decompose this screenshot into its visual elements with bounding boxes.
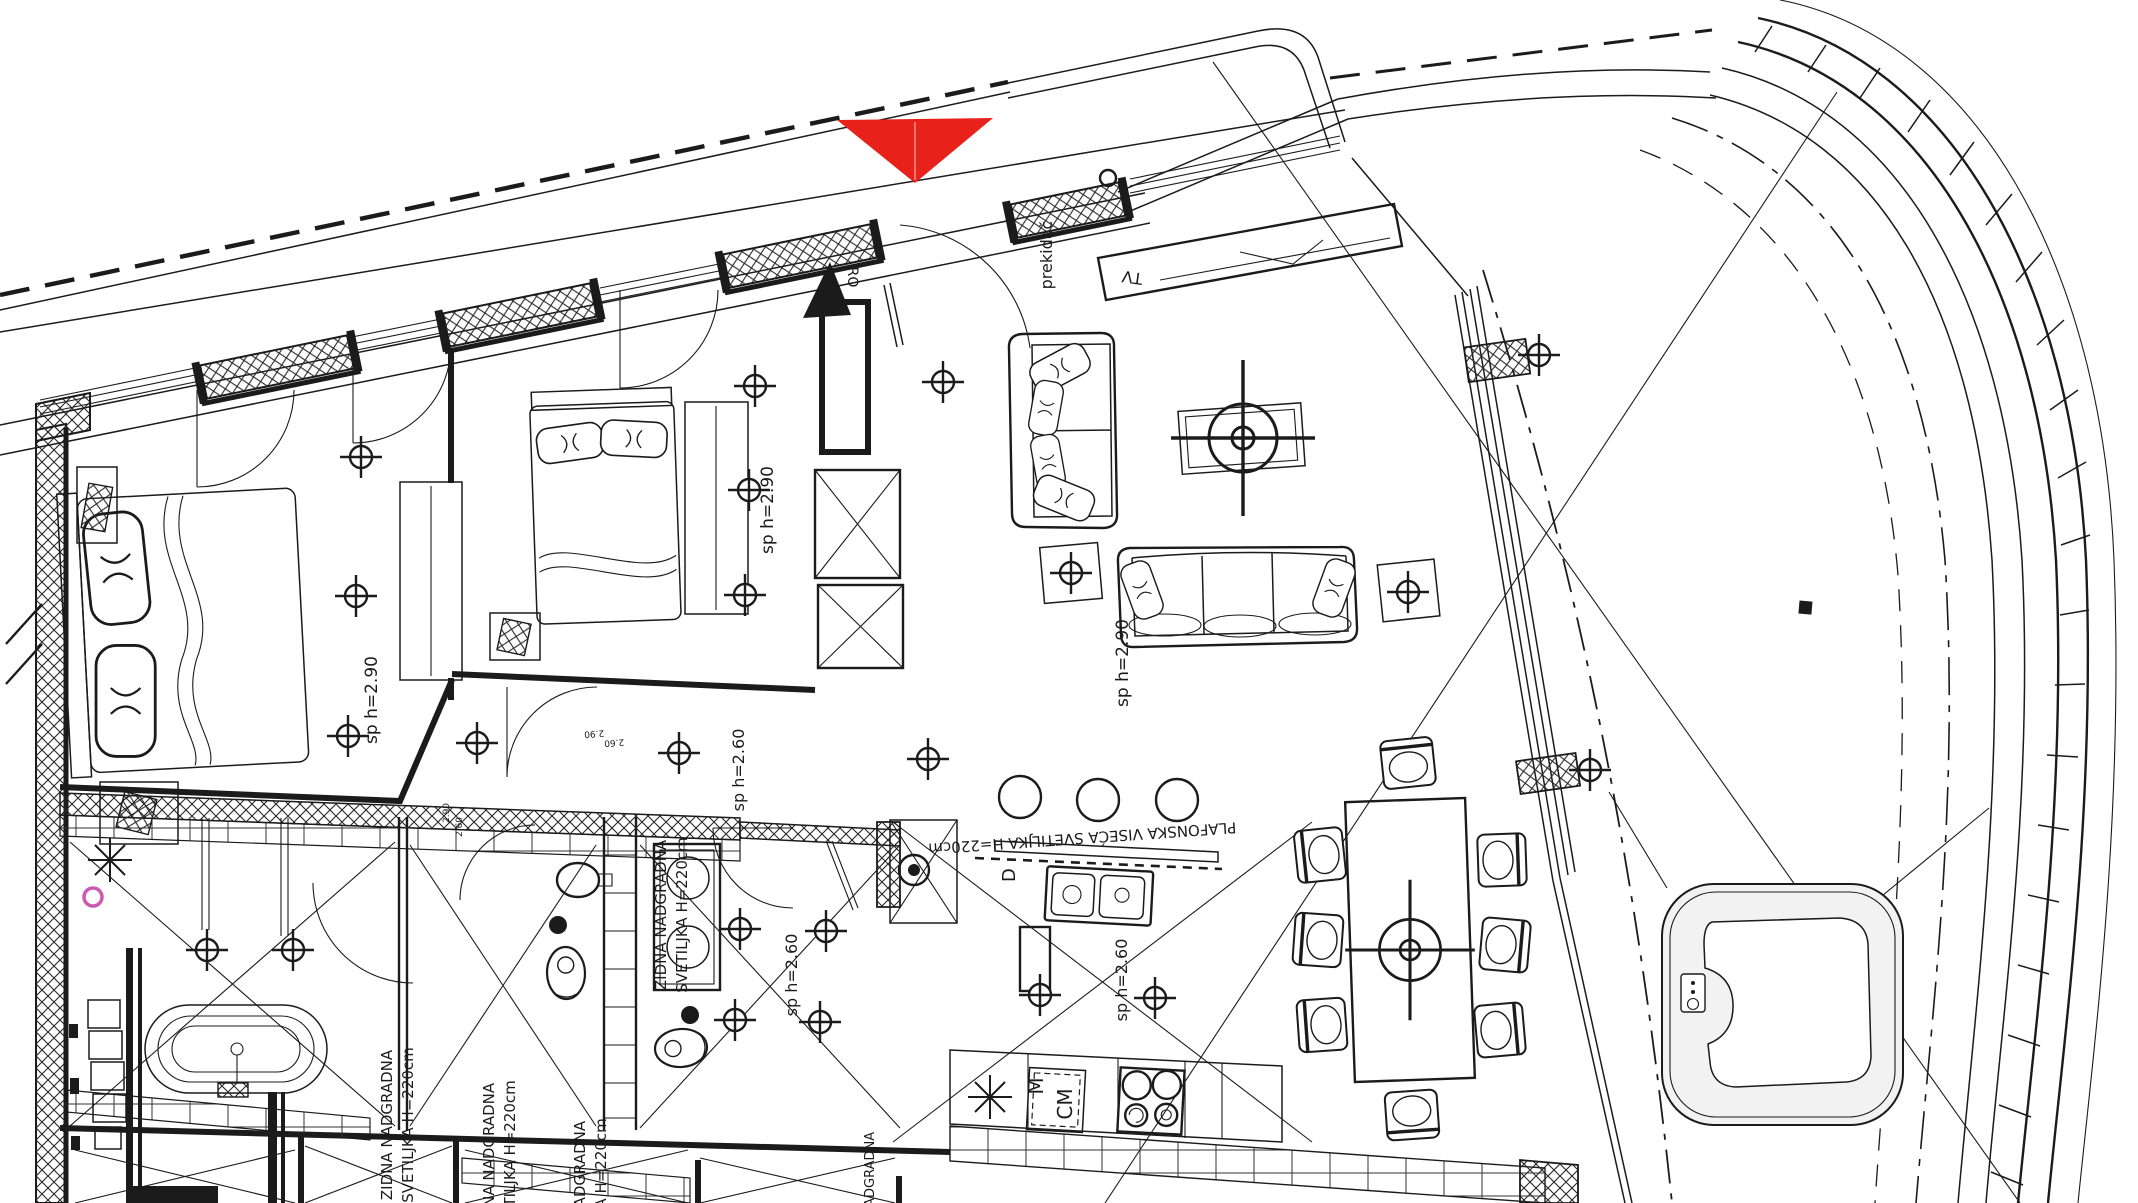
label-dishwasher: D	[999, 868, 1020, 882]
label-room-height: sp h=2.60	[729, 729, 748, 812]
dimension: 2.60	[604, 736, 625, 747]
north-entry-marker	[837, 118, 993, 183]
hot-tub	[1662, 884, 1903, 1125]
label-wall-light: SVETILJKA H=220cm	[673, 837, 691, 993]
bedroom-2-furniture	[529, 387, 681, 624]
label-wall-light: SVETILJKA H=220cm	[592, 1118, 610, 1203]
label-room-height: sp h=2.90	[1113, 619, 1133, 707]
wall-pier	[434, 278, 605, 353]
label-appliance-cm: CM	[1053, 1088, 1077, 1119]
label-distribution-board: RO	[844, 267, 860, 288]
label-wall-light: ZIDNA NADGRADNA	[652, 839, 670, 990]
sofa-two-seater	[1009, 333, 1117, 528]
tub-control-panel	[1681, 974, 1705, 1012]
label-room-height: sp h=2.60	[782, 934, 801, 1017]
annotations: sp h=2.90 sp h=2.90 sp h=2.90 sp h=2.60 …	[362, 221, 1237, 1203]
label-wall-light: SVETILJKA H=220cm	[399, 1047, 417, 1203]
interior-walls	[60, 262, 1578, 1203]
wall-pier	[1002, 177, 1134, 243]
wc-middle	[546, 863, 612, 1000]
stove	[1117, 1067, 1184, 1134]
dimension: 2.90	[584, 727, 605, 738]
label-wall-light: ZIDNA NADGRADNA	[571, 1120, 589, 1203]
shaft-rungs	[604, 855, 636, 1118]
pendant-light	[999, 776, 1041, 818]
dimension: 2.90	[442, 803, 452, 823]
pink-marker	[84, 888, 102, 906]
dining-table	[1292, 736, 1531, 1140]
junction-symbol	[968, 1075, 1012, 1119]
hall-closet	[815, 470, 903, 668]
pendant-light	[1156, 779, 1198, 821]
kitchen-island	[1020, 927, 1050, 991]
tv-cabinet	[1098, 204, 1402, 300]
pendant-light-large	[1345, 880, 1475, 1020]
bedroom-2-wardrobe	[685, 402, 748, 614]
doors	[197, 225, 1030, 983]
sofa-three-seater	[1118, 547, 1358, 647]
pendant-light-large	[1171, 360, 1315, 516]
label-tv: TV	[1121, 267, 1145, 289]
floor-plan-canvas: sp h=2.90 sp h=2.90 sp h=2.90 sp h=2.60 …	[0, 0, 2138, 1203]
wall-pier	[191, 330, 362, 405]
label-wall-light: ZIDNA NADGRADNA	[378, 1049, 396, 1200]
bedroom-2-nightstand	[490, 613, 540, 660]
kitchen-sink	[1045, 866, 1154, 925]
label-wall-light: SVETILJKA H=220cm	[501, 1080, 519, 1203]
label-room-height: sp h=2.90	[362, 656, 382, 744]
label-wall-light: ZIDNA NADGRADNA	[480, 1082, 498, 1203]
dimension: 2.60	[455, 817, 465, 837]
label-wall-light: ZIDNA NADGRADNA	[863, 1132, 878, 1203]
glass-wall	[1455, 270, 1672, 1203]
floor-plan-drawing: sp h=2.90 sp h=2.90 sp h=2.90 sp h=2.60 …	[0, 0, 2138, 1203]
label-ceiling-pendant-light: PLAFONSKA VISEĆA SVETILJKA H=220cm	[928, 818, 1237, 858]
pendant-light	[1077, 779, 1119, 821]
bedroom-1-wardrobe	[400, 482, 462, 680]
shower	[890, 820, 957, 923]
label-room-height: sp h=2.60	[1112, 939, 1131, 1022]
label-switch: prekidač	[1037, 221, 1056, 290]
label-room-height: sp h=2.90	[758, 466, 778, 554]
label-appliance-m: M	[1024, 1077, 1048, 1094]
